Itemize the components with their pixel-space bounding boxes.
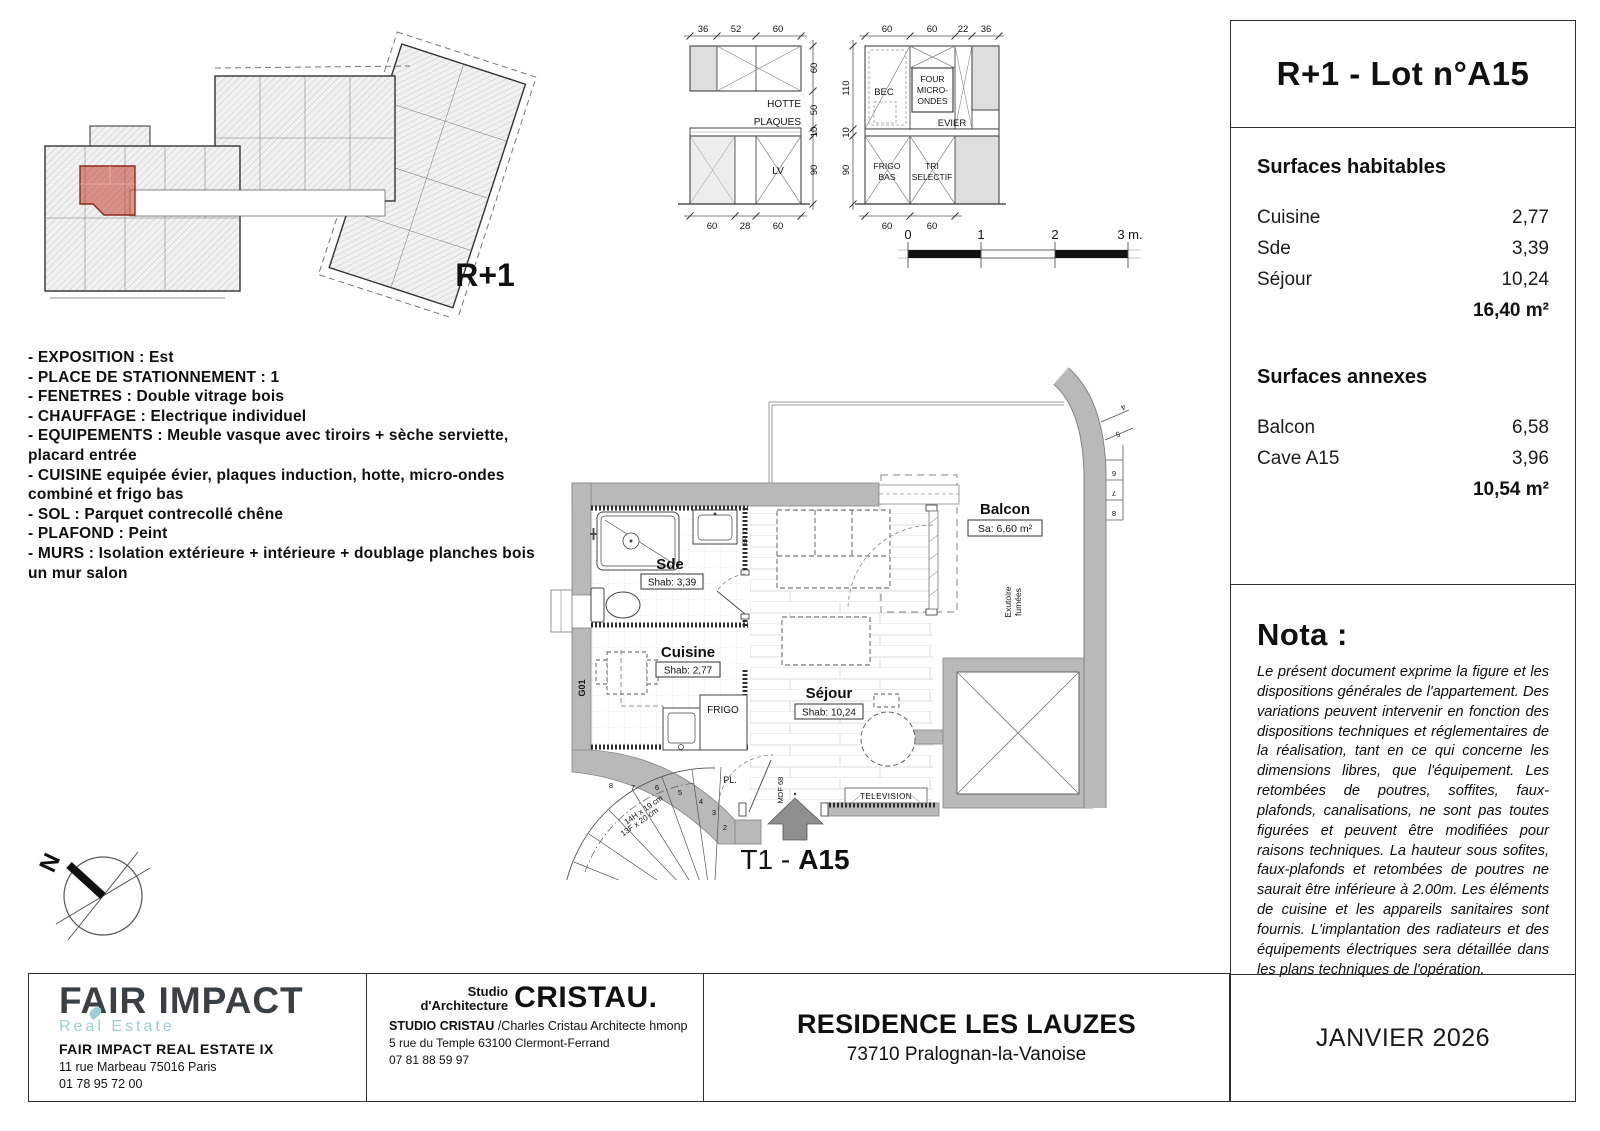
svg-text:N: N	[38, 849, 66, 876]
feature-item: - EXPOSITION : Est	[28, 348, 555, 368]
fridge-box	[700, 695, 747, 750]
svg-text:FRIGO: FRIGO	[874, 161, 901, 171]
svg-text:10: 10	[809, 127, 820, 138]
svg-text:BAS: BAS	[878, 172, 895, 182]
svg-text:ONDES: ONDES	[917, 96, 948, 106]
svg-text:MICRO-: MICRO-	[917, 85, 948, 95]
shaft	[957, 672, 1079, 794]
sde-label: Sde	[656, 556, 684, 573]
svg-text:Shab: 3,39: Shab: 3,39	[648, 578, 697, 589]
lot-type-label: T1 -A15	[740, 844, 849, 875]
svg-text:6: 6	[1112, 469, 1116, 478]
scale-bar: 0 1 2 3 m.	[893, 228, 1148, 278]
title-block: FAIR IMPACT Real Estate FAIR IMPACT REAL…	[28, 973, 1230, 1102]
kitchen-sink-unit	[663, 708, 700, 750]
lot-title-cell: R+1 - Lot n°A15	[1231, 21, 1575, 128]
balcony-slider-window	[929, 511, 938, 609]
surface-row: Sde 3,39	[1257, 238, 1549, 260]
svg-text:8: 8	[609, 781, 613, 790]
balcony-railing	[769, 402, 1064, 483]
bay-window	[879, 485, 959, 504]
smoke-vent-label-2: fumées	[1013, 588, 1023, 616]
feature-item: - CUISINE equipée évier, plaques inducti…	[28, 466, 555, 505]
left-window	[551, 590, 572, 632]
table-dashed	[782, 617, 870, 665]
svg-text:36: 36	[981, 24, 992, 35]
svg-text:110: 110	[841, 80, 852, 95]
svg-text:2: 2	[723, 823, 727, 832]
svg-text:60: 60	[927, 24, 938, 35]
plan-sheet: R+1 36 52 60 HOTTE PLAQUES LV	[0, 0, 1600, 1131]
svg-text:2: 2	[1051, 228, 1058, 242]
svg-text:60: 60	[809, 63, 820, 74]
feature-item: - FENETRES : Double vitrage bois	[28, 387, 555, 407]
lot-features-list: - EXPOSITION : Est - PLACE DE STATIONNEM…	[28, 348, 555, 583]
entry-door-ref: MDF 68	[776, 777, 785, 804]
svg-text:28: 28	[740, 221, 751, 232]
kitchen-elevation-details: 36 52 60 HOTTE PLAQUES LV 60 50 10 90	[650, 18, 1020, 243]
surfaces-annexes-total: 10,54 m²	[1257, 479, 1549, 501]
studio-cristau-logo: Studio d'Architecture CRISTAU.	[389, 984, 689, 1012]
surfaces-habitables-total: 16,40 m²	[1257, 300, 1549, 322]
feature-item: - CHAUFFAGE : Electrique individuel	[28, 407, 555, 427]
nota-heading: Nota :	[1257, 617, 1549, 653]
svg-text:36: 36	[698, 24, 709, 35]
svg-text:4: 4	[699, 797, 703, 806]
project-cell: RESIDENCE LES LAUZES 73710 Pralognan-la-…	[704, 974, 1229, 1101]
apartment-floor-plan: 4 5 6 7 8 2 3 4 5 6 7 8 14H x 19 cm 13F …	[545, 360, 1185, 880]
developer-cell: FAIR IMPACT Real Estate FAIR IMPACT REAL…	[29, 974, 367, 1101]
svg-text:60: 60	[707, 221, 718, 232]
svg-text:LV: LV	[772, 166, 784, 177]
architect-address: 5 rue du Temple 63100 Clermont-Ferrand	[389, 1036, 703, 1050]
svg-text:8: 8	[1112, 509, 1116, 518]
chair-dashed	[874, 694, 899, 707]
cuisine-label: Cuisine	[661, 644, 715, 661]
svg-text:90: 90	[809, 165, 820, 176]
feature-item: - MURS : Isolation extérieure + intérieu…	[28, 544, 555, 583]
svg-text:4: 4	[1119, 402, 1127, 412]
surface-row: Séjour 10,24	[1257, 269, 1549, 291]
sejour-label: Séjour	[806, 685, 853, 702]
architect-cell: Studio d'Architecture CRISTAU. STUDIO CR…	[367, 974, 704, 1101]
svg-text:Shab: 10,24: Shab: 10,24	[802, 708, 856, 719]
overview-floor-plan: R+1	[30, 18, 540, 318]
surface-row: Cave A15 3,96	[1257, 448, 1549, 470]
developer-address: 11 rue Marbeau 75016 Paris	[59, 1060, 366, 1074]
svg-text:0: 0	[904, 228, 911, 242]
svg-text:60: 60	[882, 221, 893, 232]
svg-text:1: 1	[977, 228, 984, 242]
round-table-dashed	[861, 712, 915, 766]
surface-row: Balcon 6,58	[1257, 417, 1549, 439]
svg-text:3: 3	[712, 808, 716, 817]
feature-item: - PLAFOND : Peint	[28, 524, 555, 544]
project-city: 73710 Pralognan-la-Vanoise	[847, 1044, 1086, 1066]
fair-impact-logo: FAIR IMPACT	[59, 982, 366, 1020]
washbasin	[693, 510, 737, 544]
svg-text:HOTTE: HOTTE	[767, 99, 801, 110]
sofa-bed	[777, 510, 890, 588]
tv-label: TELEVISION	[860, 792, 912, 801]
svg-text:60: 60	[773, 24, 784, 35]
svg-text:5: 5	[1114, 429, 1121, 439]
svg-text:60: 60	[882, 24, 893, 35]
kitchen-elevation-left: 36 52 60 HOTTE PLAQUES LV 60 50 10 90	[678, 24, 820, 232]
smoke-vent-label-1: Exutoire	[1003, 586, 1013, 617]
svg-text:TRI: TRI	[925, 161, 939, 171]
architect-phone: 07 81 88 59 97	[389, 1053, 703, 1067]
svg-text:FOUR: FOUR	[920, 74, 944, 84]
surfaces-habitables-heading: Surfaces habitables	[1257, 156, 1549, 179]
architect-company: STUDIO CRISTAU /Charles Cristau Architec…	[389, 1019, 703, 1033]
feature-item: - PLACE DE STATIONNEMENT : 1	[28, 368, 555, 388]
project-name: RESIDENCE LES LAUZES	[797, 1009, 1136, 1040]
svg-text:6: 6	[655, 783, 659, 792]
page-title: R+1 - Lot n°A15	[1277, 55, 1530, 93]
surface-row: Cuisine 2,77	[1257, 207, 1549, 229]
svg-text:60: 60	[773, 221, 784, 232]
north-arrow-icon: N	[38, 838, 153, 948]
placard-label: PL.	[723, 775, 737, 785]
svg-text:7: 7	[631, 783, 635, 792]
svg-text:BEC: BEC	[874, 87, 894, 98]
svg-text:5: 5	[678, 788, 682, 797]
svg-text:PLAQUES: PLAQUES	[754, 117, 802, 128]
developer-phone: 01 78 95 72 00	[59, 1077, 366, 1091]
svg-text:52: 52	[731, 24, 742, 35]
surfaces-annexes-heading: Surfaces annexes	[1257, 366, 1549, 389]
kitchen-elevation-right: 60 60 22 36 BEC FOUR MICRO- ONDES EVIER …	[841, 24, 1006, 232]
nota-section: Nota : Le présent document exprime la fi…	[1231, 585, 1575, 975]
svg-text:Shab: 2,77: Shab: 2,77	[664, 666, 713, 677]
svg-text:10: 10	[841, 127, 852, 138]
svg-text:22: 22	[958, 24, 969, 35]
info-panel: R+1 - Lot n°A15 Surfaces habitables Cuis…	[1230, 20, 1576, 1102]
bp-label: BP 73	[743, 527, 749, 544]
balcon-label: Balcon	[980, 501, 1030, 518]
issue-date: JANVIER 2026	[1231, 975, 1575, 1101]
svg-text:EVIER: EVIER	[938, 118, 967, 129]
svg-text:Sa: 6,60 m²: Sa: 6,60 m²	[978, 523, 1033, 535]
feature-item: - SOL : Parquet contrecollé chêne	[28, 505, 555, 525]
surfaces-section: Surfaces habitables Cuisine 2,77 Sde 3,3…	[1231, 128, 1575, 585]
developer-company: FAIR IMPACT REAL ESTATE IX	[59, 1041, 366, 1057]
svg-text:SELECTIF: SELECTIF	[912, 172, 953, 182]
svg-text:3 m.: 3 m.	[1117, 228, 1142, 242]
feature-item: - EQUIPEMENTS : Meuble vasque avec tiroi…	[28, 426, 555, 465]
svg-text:50: 50	[809, 105, 820, 116]
nota-body: Le présent document exprime la figure et…	[1257, 663, 1549, 981]
frigo-label: FRIGO	[707, 705, 739, 716]
overview-floor-label: R+1	[455, 257, 515, 293]
svg-text:7: 7	[1112, 489, 1116, 498]
g01-label: G01	[577, 679, 587, 696]
svg-text:90: 90	[841, 165, 852, 176]
